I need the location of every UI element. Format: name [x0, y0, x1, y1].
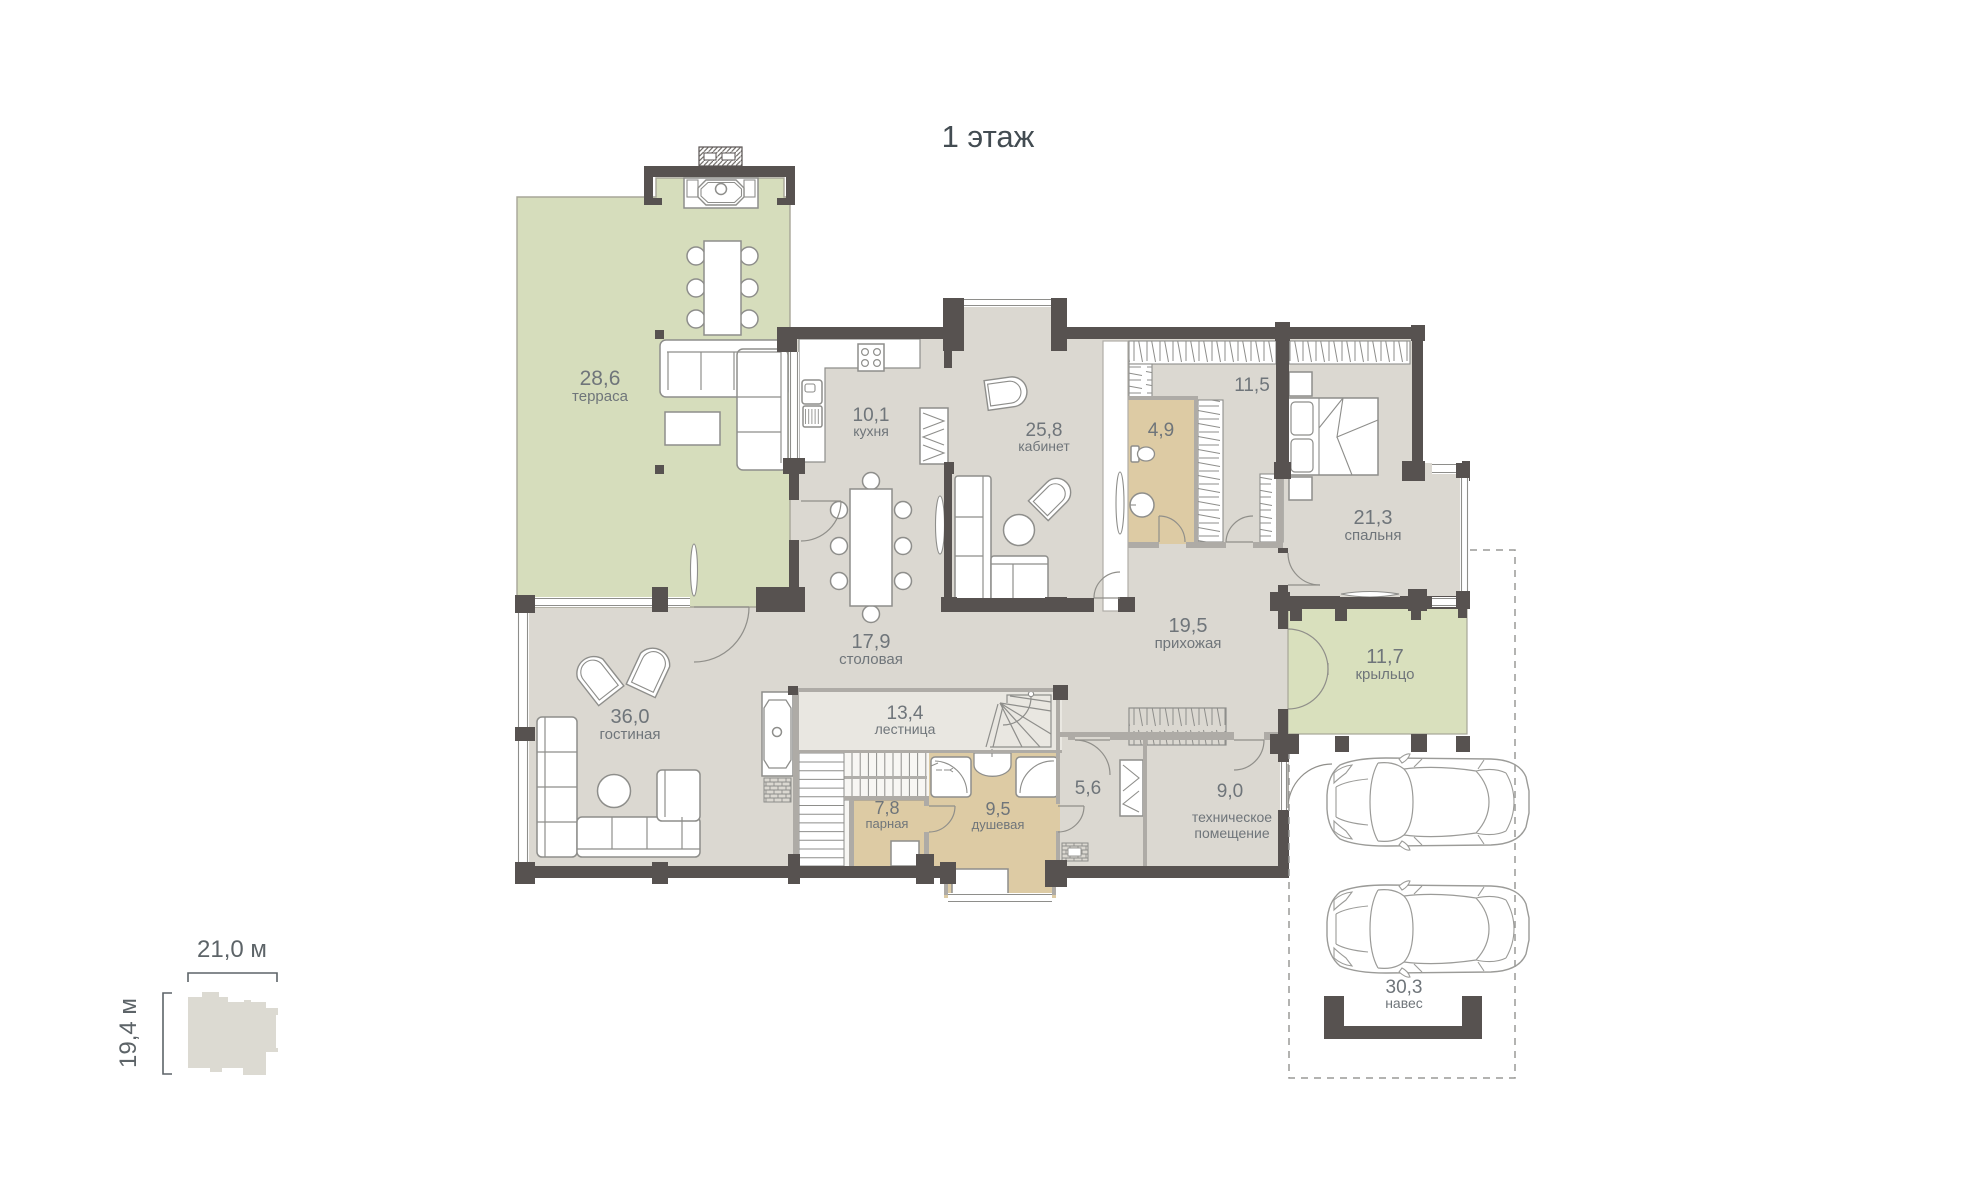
svg-text:9,0: 9,0 — [1217, 781, 1243, 802]
svg-text:помещение: помещение — [1194, 825, 1269, 841]
svg-text:17,9: 17,9 — [852, 631, 891, 653]
svg-text:столовая: столовая — [839, 651, 903, 668]
svg-text:28,6: 28,6 — [580, 367, 621, 390]
svg-text:5,6: 5,6 — [1075, 778, 1101, 799]
svg-text:21,0 м: 21,0 м — [197, 936, 267, 963]
svg-text:лестница: лестница — [875, 721, 936, 737]
svg-text:19,4 м: 19,4 м — [115, 998, 142, 1068]
svg-text:19,5: 19,5 — [1169, 615, 1208, 637]
svg-text:спальня: спальня — [1345, 527, 1402, 544]
svg-text:душевая: душевая — [972, 817, 1025, 832]
svg-text:парная: парная — [866, 816, 909, 831]
svg-text:11,5: 11,5 — [1234, 375, 1270, 396]
svg-text:7,8: 7,8 — [874, 798, 899, 818]
svg-text:прихожая: прихожая — [1155, 635, 1222, 652]
svg-text:гостиная: гостиная — [600, 726, 661, 743]
svg-text:1 этаж: 1 этаж — [942, 119, 1035, 154]
svg-text:11,7: 11,7 — [1366, 646, 1403, 668]
svg-text:кабинет: кабинет — [1018, 438, 1070, 454]
svg-text:4,9: 4,9 — [1148, 420, 1174, 441]
svg-text:9,5: 9,5 — [985, 799, 1010, 819]
svg-text:36,0: 36,0 — [611, 706, 650, 728]
svg-text:навес: навес — [1385, 995, 1423, 1011]
svg-text:21,3: 21,3 — [1354, 507, 1393, 529]
svg-text:кухня: кухня — [853, 423, 889, 439]
svg-text:терраса: терраса — [572, 388, 629, 405]
svg-text:техническое: техническое — [1192, 809, 1272, 825]
svg-text:крыльцо: крыльцо — [1355, 666, 1414, 683]
